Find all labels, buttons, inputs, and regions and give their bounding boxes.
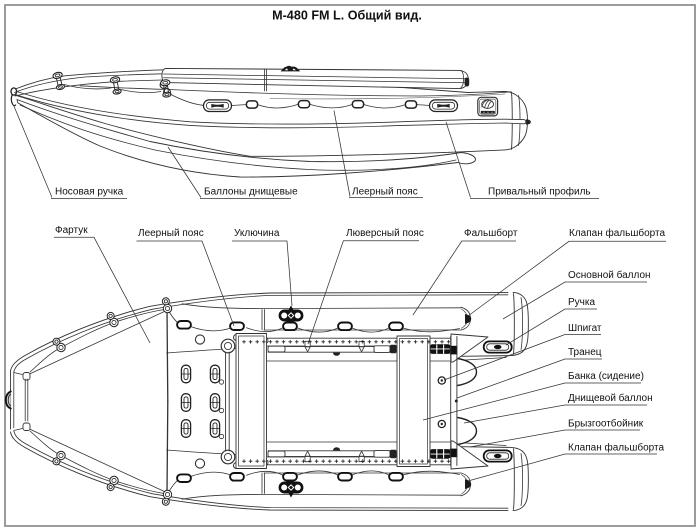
svg-text:Ручка: Ручка <box>568 297 595 308</box>
svg-text:Банка (сидение): Банка (сидение) <box>568 371 644 382</box>
svg-text:Шпигат: Шпигат <box>568 323 602 334</box>
svg-text:Основной баллон: Основной баллон <box>568 269 651 281</box>
svg-text:Уключина: Уключина <box>234 228 280 239</box>
svg-text:Леерный пояс: Леерный пояс <box>138 228 204 239</box>
svg-text:Леерный пояс: Леерный пояс <box>352 187 418 198</box>
svg-text:Носовая ручка: Носовая ручка <box>55 187 124 198</box>
svg-text:Привальный профиль: Привальный профиль <box>488 186 591 198</box>
svg-text:Фальшборт: Фальшборт <box>464 227 518 239</box>
svg-text:Транец: Транец <box>568 347 602 358</box>
svg-text:Фартук: Фартук <box>55 225 88 236</box>
svg-text:Баллоны днищевые: Баллоны днищевые <box>204 187 298 198</box>
svg-text:Брызгоотбойник: Брызгоотбойник <box>568 418 644 430</box>
svg-text:Днищевой баллон: Днищевой баллон <box>568 392 653 404</box>
svg-text:Клапан фальшборта: Клапан фальшборта <box>569 227 665 239</box>
svg-text:М-480 FM L. Общий вид.: М-480 FM L. Общий вид. <box>272 9 422 23</box>
svg-text:Люверсный пояс: Люверсный пояс <box>346 228 424 239</box>
svg-text:Клапан фальшборта: Клапан фальшборта <box>568 442 664 454</box>
